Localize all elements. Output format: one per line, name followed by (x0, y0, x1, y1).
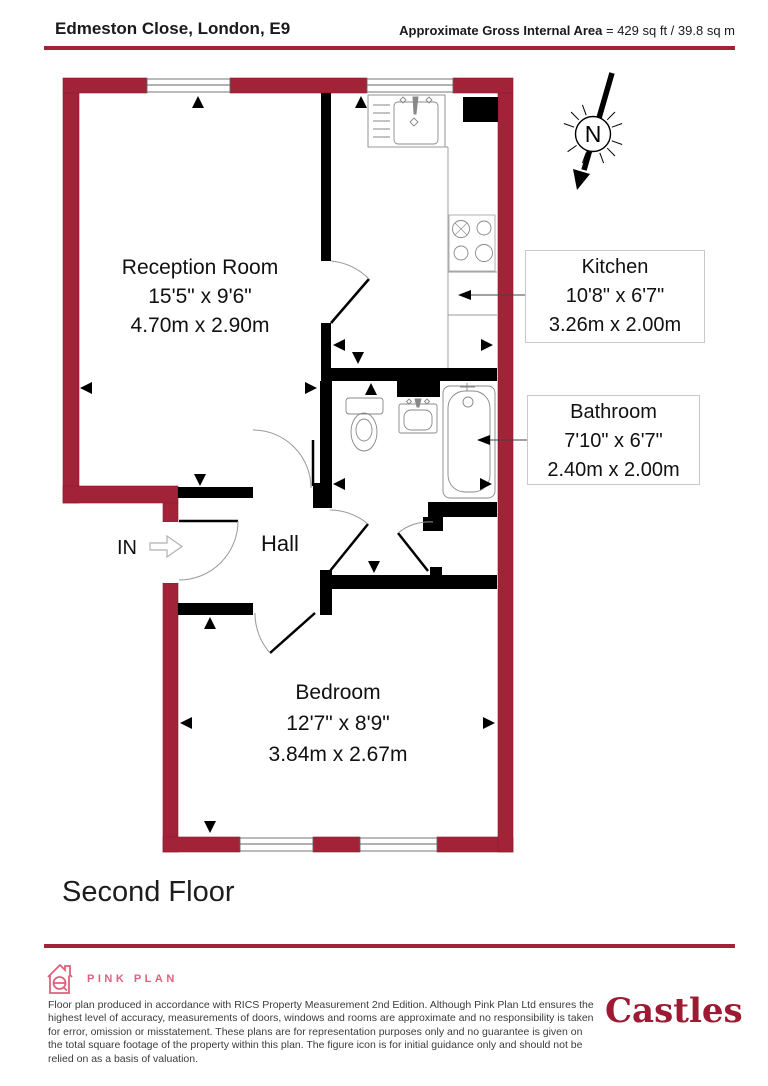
toilet (346, 398, 383, 451)
wash-basin (399, 399, 437, 433)
bathroom-door (330, 510, 433, 571)
bedroom-door (255, 613, 315, 653)
kitchen-fixtures (368, 95, 498, 368)
kitchen-door (331, 261, 369, 323)
kitchen-label: Kitchen 10'8" x 6'7" 3.26m x 2.00m (525, 250, 705, 343)
reception-room-label: Reception Room 15'5" x 9'6" 4.70m x 2.90… (90, 253, 310, 340)
hob (449, 215, 495, 271)
window (367, 79, 453, 92)
pink-plan-logo: PINK PLAN (46, 962, 178, 996)
room-name: Reception Room (90, 253, 310, 282)
room-name: Kitchen (526, 253, 704, 282)
kitchen-counter (368, 147, 497, 368)
room-size-imperial: 7'10" x 6'7" (528, 427, 699, 456)
interior-walls (178, 93, 497, 615)
reception-door (253, 430, 313, 488)
gross-internal-area: Approximate Gross Internal Area = 429 sq… (399, 23, 735, 38)
area-label: Approximate Gross Internal Area (399, 23, 602, 38)
room-size-imperial: 12'7" x 8'9" (227, 708, 449, 739)
room-size-imperial: 10'8" x 6'7" (526, 282, 704, 311)
window (240, 838, 313, 851)
room-size-metric: 3.26m x 2.00m (526, 311, 704, 340)
room-size-imperial: 15'5" x 9'6" (90, 282, 310, 311)
entrance-in-label: IN (106, 534, 148, 563)
leader-arrow (477, 435, 490, 445)
window (147, 79, 230, 92)
room-name: Bathroom (528, 398, 699, 427)
header-divider (44, 46, 735, 50)
property-address: Edmeston Close, London, E9 (55, 19, 290, 39)
pink-plan-house-icon (46, 962, 73, 996)
room-size-metric: 3.84m x 2.67m (227, 739, 449, 770)
disclaimer-text: Floor plan produced in accordance with R… (48, 999, 596, 1066)
bedroom-label: Bedroom 12'7" x 8'9" 3.84m x 2.67m (227, 677, 449, 770)
leader-arrow (458, 290, 471, 300)
floor-title: Second Floor (62, 876, 235, 909)
hall-label: Hall (230, 529, 330, 558)
room-name: Bedroom (227, 677, 449, 708)
room-size-metric: 4.70m x 2.90m (90, 311, 310, 340)
bathroom-label: Bathroom 7'10" x 6'7" 2.40m x 2.00m (527, 395, 700, 485)
bathroom-fixtures (346, 383, 495, 498)
castles-brand-logo: Castles (605, 991, 743, 1031)
room-size-metric: 2.40m x 2.00m (528, 456, 699, 485)
compass-north-label: N (585, 121, 602, 147)
area-value: = 429 sq ft / 39.8 sq m (606, 23, 735, 38)
window (360, 838, 437, 851)
pink-plan-wordmark: PINK PLAN (87, 973, 178, 985)
floorplan-page: N Edmeston Close, London, E9 Approximate… (0, 0, 768, 1086)
compass-north-icon: N (564, 73, 622, 190)
kitchen-unit (463, 97, 498, 122)
footer-divider (44, 944, 735, 948)
leader-lines (458, 290, 529, 445)
kitchen-sink (368, 95, 445, 147)
